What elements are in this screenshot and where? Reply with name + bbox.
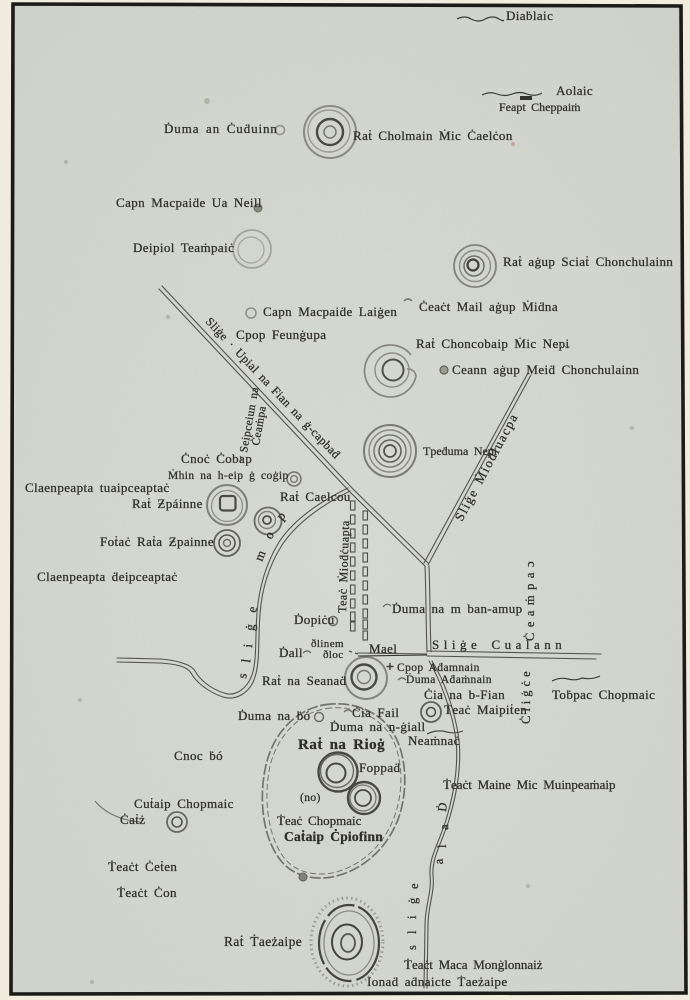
- svg-text:Raṫ Ṫaeżaipe: Raṫ Ṫaeżaipe: [224, 934, 302, 949]
- svg-text:Ṫeaċ Maipiṫen: Ṫeaċ Maipiṫen: [444, 702, 527, 717]
- svg-text:Raṫ Cholmain Ṁic Ċaelċon: Raṫ Cholmain Ṁic Ċaelċon: [353, 128, 513, 143]
- svg-text:Ċeaċt Mail aġup Ṁiḋna: Ċeaċt Mail aġup Ṁiḋna: [419, 299, 558, 314]
- svg-text:Ṫeaċ Chopmaic: Ṫeaċ Chopmaic: [277, 813, 362, 828]
- svg-text:s: s: [405, 945, 419, 950]
- svg-text:Ḋuma an Ċuḋuinn: Ḋuma an Ċuḋuinn: [164, 121, 278, 136]
- svg-text:Tpeḋuma Nepi: Tpeḋuma Nepi: [423, 444, 498, 458]
- svg-text:Capn Macpaiḋe Laiġen: Capn Macpaiḋe Laiġen: [263, 304, 397, 319]
- svg-text:ðloc: ðloc: [323, 649, 344, 661]
- svg-text:Toḃpac Chopmaic: Toḃpac Chopmaic: [552, 687, 655, 702]
- svg-text:Ḋuma Aḋaṁnain: Ḋuma Aḋaṁnain: [406, 672, 492, 686]
- svg-text:Raṫ Ƶpáinne: Raṫ Ƶpáinne: [132, 496, 203, 511]
- svg-text:(no): (no): [300, 792, 321, 804]
- svg-text:Foppaḋ: Foppaḋ: [359, 760, 400, 775]
- svg-text:Ḋuma na n-ġiall: Ḋuma na n-ġiall: [330, 719, 425, 734]
- svg-text:Cpop Aḋamnain: Cpop Aḋamnain: [397, 662, 480, 674]
- svg-text:Ṁhin na h-eip ġ coġip: Ṁhin na h-eip ġ coġip: [168, 468, 289, 482]
- svg-text:Foṫaċ Raṫa Ƶpainne: Foṫaċ Raṫa Ƶpainne: [100, 534, 214, 549]
- svg-text:Neaṁnaċ: Neaṁnaċ: [408, 733, 460, 748]
- svg-text:Deipiol Teaṁpaiċ: Deipiol Teaṁpaiċ: [133, 240, 234, 255]
- svg-text:Ḋall: Ḋall: [279, 645, 303, 660]
- svg-text:Raṫ Caelcou: Raṫ Caelcou: [280, 489, 351, 504]
- svg-text:Ṫeaċt Maine Mic Muinpeaṁaip: Ṫeaċt Maine Mic Muinpeaṁaip: [443, 777, 615, 792]
- svg-text:Ceann aġup Meiḋ Chonchulainn: Ceann aġup Meiḋ Chonchulainn: [452, 362, 639, 377]
- svg-text:a: a: [432, 858, 446, 865]
- svg-text:Ḋuma na ḃó: Ḋuma na ḃó: [238, 708, 311, 723]
- svg-text:Ḋ: Ḋ: [435, 801, 450, 812]
- svg-text:Cpop Feunġupa: Cpop Feunġupa: [236, 327, 326, 342]
- svg-text:Caṫaip Ċpiofinn: Caṫaip Ċpiofinn: [284, 829, 383, 844]
- svg-text:Cuṫaip Chopmaic: Cuṫaip Chopmaic: [134, 796, 234, 811]
- svg-text:Aolaic: Aolaic: [556, 83, 593, 98]
- svg-text:Raṫ Choncobaip Ṁic Nepi: Raṫ Choncobaip Ṁic Nepi: [416, 336, 570, 351]
- svg-text:Sliġe Cualann: Sliġe Cualann: [432, 637, 566, 652]
- svg-text:Ṫeaċt Maca Monġlonnaiż: Ṫeaċt Maca Monġlonnaiż: [404, 957, 543, 972]
- svg-text:Claenpeapta tuaipceaptaċ: Claenpeapta tuaipceaptaċ: [25, 480, 170, 495]
- svg-text:Ionaḋ aḋnaicte Ṫaeżaipe: Ionaḋ aḋnaicte Ṫaeżaipe: [367, 974, 508, 989]
- svg-text:l: l: [405, 930, 419, 934]
- svg-text:Capn Macpaiḋe Ua Neill: Capn Macpaiḋe Ua Neill: [116, 195, 262, 210]
- svg-text:a: a: [437, 824, 451, 830]
- svg-text:Ṫeaċt Ċon: Ṫeaċt Ċon: [117, 885, 177, 900]
- svg-text:Ḋopiċu: Ḋopiċu: [294, 612, 335, 627]
- svg-text:ġ: ġ: [406, 897, 420, 904]
- svg-text:Cnoc ḃó: Cnoc ḃó: [174, 748, 223, 763]
- svg-text:Feapt Cheppaiṁ: Feapt Cheppaiṁ: [499, 100, 581, 114]
- svg-text:Ċeaṁpaɔ: Ċeaṁpaɔ: [522, 556, 537, 641]
- svg-text:Raṫ na Rioġ: Raṫ na Rioġ: [298, 737, 385, 753]
- svg-text:l: l: [435, 844, 449, 848]
- svg-text:Ḋuma na m ban-amup: Ḋuma na m ban-amup: [392, 601, 523, 616]
- svg-text:Claenpeapta ḋeipceaptaċ: Claenpeapta ḋeipceaptaċ: [37, 569, 178, 584]
- svg-text:Diaḃlaic: Diaḃlaic: [506, 8, 553, 23]
- svg-text:Ċaṫż: Ċaṫż: [120, 812, 145, 827]
- svg-text:Mael: Mael: [369, 641, 397, 656]
- svg-text:Ċia na b-Fian: Ċia na b-Fian: [424, 687, 505, 702]
- svg-text:Ṫeaċt Ċeṫen: Ṫeaċt Ċeṫen: [108, 859, 177, 874]
- svg-text:i: i: [405, 915, 419, 919]
- svg-text:Raṫ aġup Sciaṫ Chonchulainn: Raṫ aġup Sciaṫ Chonchulainn: [503, 254, 673, 269]
- svg-text:Raṫ na Seanaḋ: Raṫ na Seanaḋ: [262, 673, 347, 688]
- svg-text:e: e: [407, 883, 421, 889]
- svg-text:Ċia Fail: Ċia Fail: [352, 705, 399, 720]
